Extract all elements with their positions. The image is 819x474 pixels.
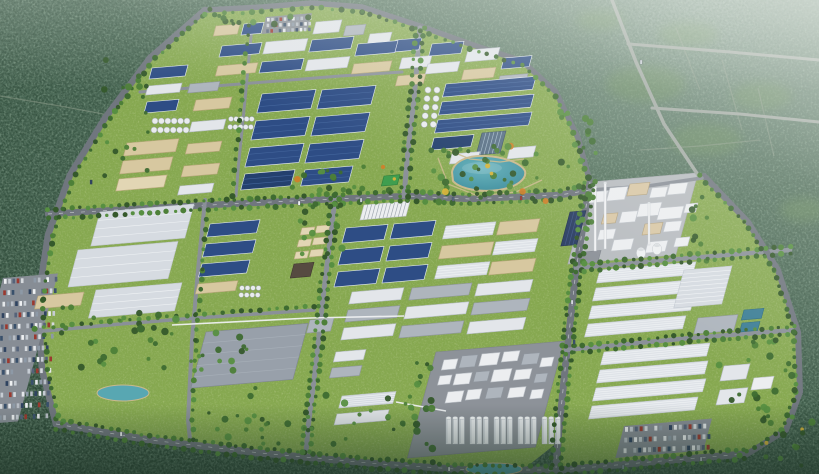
industrial-park-aerial-view bbox=[0, 0, 819, 474]
atmosphere-overlay bbox=[0, 0, 819, 474]
aerial-render-canvas bbox=[0, 0, 819, 474]
